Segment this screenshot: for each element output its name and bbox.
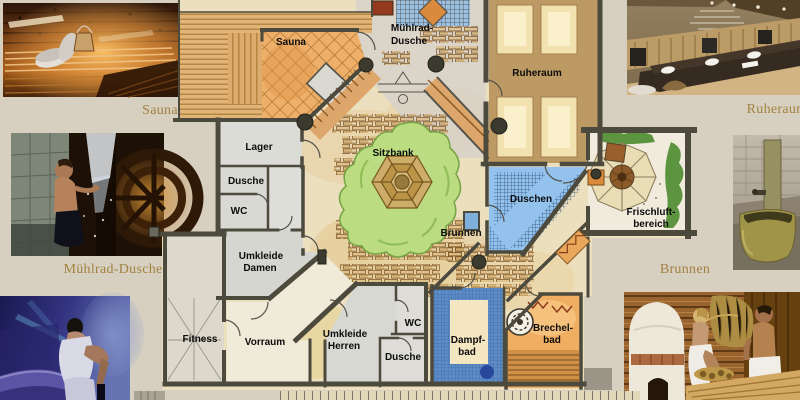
svg-text:Frischluft-: Frischluft- bbox=[627, 207, 676, 218]
svg-text:Ruheraum: Ruheraum bbox=[512, 68, 562, 79]
svg-text:Sitzbank: Sitzbank bbox=[372, 148, 414, 159]
svg-text:Ruheraum: Ruheraum bbox=[747, 102, 800, 117]
svg-text:bad: bad bbox=[543, 335, 561, 346]
svg-text:Umkleide: Umkleide bbox=[239, 251, 284, 262]
svg-text:Dusche: Dusche bbox=[385, 352, 422, 363]
svg-text:bereich: bereich bbox=[633, 219, 669, 230]
svg-text:Umkleide: Umkleide bbox=[323, 329, 368, 340]
svg-text:Dusche: Dusche bbox=[391, 36, 428, 47]
svg-text:Lager: Lager bbox=[245, 142, 272, 153]
svg-text:Sauna: Sauna bbox=[276, 37, 306, 48]
svg-text:Mühlrad-Dusche: Mühlrad-Dusche bbox=[63, 262, 162, 277]
svg-text:Herren: Herren bbox=[328, 341, 360, 352]
svg-text:Duschen: Duschen bbox=[510, 194, 552, 205]
svg-text:WC: WC bbox=[405, 318, 422, 329]
svg-text:WC: WC bbox=[231, 206, 248, 217]
svg-text:Dampf-: Dampf- bbox=[451, 335, 485, 346]
svg-text:Vorraum: Vorraum bbox=[245, 337, 285, 348]
svg-text:Brunnen: Brunnen bbox=[660, 262, 710, 277]
svg-text:Fitness: Fitness bbox=[182, 334, 217, 345]
svg-text:Mühlrad-: Mühlrad- bbox=[391, 23, 433, 34]
svg-text:Sauna: Sauna bbox=[142, 103, 178, 118]
svg-text:bad: bad bbox=[458, 347, 476, 358]
svg-text:Dusche: Dusche bbox=[228, 176, 265, 187]
svg-text:Brunnen: Brunnen bbox=[440, 228, 481, 239]
svg-text:Brechel-: Brechel- bbox=[533, 323, 573, 334]
svg-text:Damen: Damen bbox=[243, 263, 276, 274]
